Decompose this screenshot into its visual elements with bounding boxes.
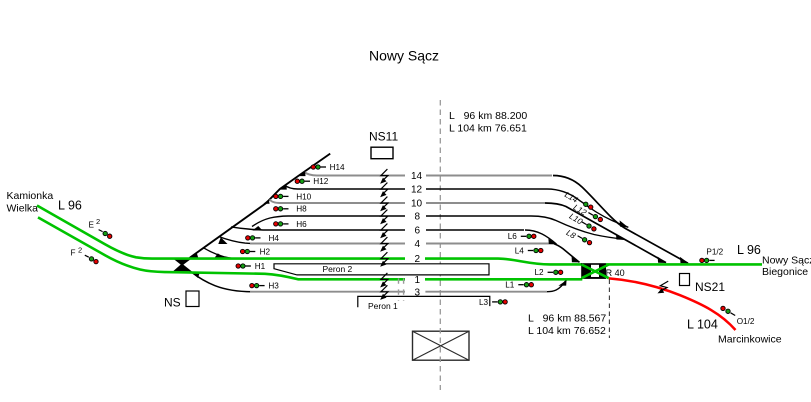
svg-text:14: 14 [411,171,423,182]
svg-text:NS21: NS21 [695,280,725,294]
svg-text:L2: L2 [534,268,544,277]
svg-text:6: 6 [415,226,421,237]
svg-text:Wielka: Wielka [7,203,39,215]
svg-text:H4: H4 [269,234,280,243]
svg-text:2: 2 [78,245,82,254]
svg-text:10: 10 [411,199,423,210]
svg-text:R 40: R 40 [606,268,625,278]
svg-text:NS11: NS11 [369,130,398,144]
svg-text:E: E [89,220,95,229]
svg-text:3: 3 [415,287,421,298]
svg-text:H12: H12 [313,177,328,186]
svg-text:O1/2: O1/2 [737,317,755,326]
svg-text:4: 4 [415,239,421,250]
svg-text:L 104 km 76.651: L 104 km 76.651 [449,123,527,135]
svg-text:Nowy Sącz: Nowy Sącz [369,48,439,64]
svg-text:H2: H2 [260,247,271,256]
svg-text:1: 1 [415,275,421,286]
svg-text:L 96 km 88.567: L 96 km 88.567 [528,313,606,325]
svg-text:L4: L4 [515,246,525,255]
svg-text:L1: L1 [505,281,515,290]
svg-text:F: F [71,248,76,257]
svg-text:L 104: L 104 [687,318,718,332]
svg-text:L6: L6 [508,232,518,241]
svg-text:Biegonice: Biegonice [762,266,808,278]
svg-text:2: 2 [96,217,100,226]
svg-text:L 96 km 88.200: L 96 km 88.200 [449,110,527,122]
svg-text:H10: H10 [296,192,311,201]
svg-text:8: 8 [415,212,421,223]
svg-text:Nowy Sącz: Nowy Sącz [762,255,811,267]
svg-text:H1: H1 [255,262,266,271]
svg-text:NS: NS [164,296,181,310]
svg-text:Peron 1: Peron 1 [368,301,398,311]
svg-text:H3: H3 [268,282,279,291]
svg-text:H6: H6 [296,220,307,229]
svg-text:12: 12 [411,185,423,196]
svg-text:Marcinkowice: Marcinkowice [718,334,782,346]
svg-text:Peron 2: Peron 2 [323,264,353,274]
svg-text:L 104 km 76.652: L 104 km 76.652 [528,325,606,337]
svg-text:L 96: L 96 [58,199,82,213]
svg-text:Kamionka: Kamionka [7,190,54,202]
svg-text:L3: L3 [479,298,489,307]
svg-text:2: 2 [415,254,421,265]
svg-text:L 96: L 96 [737,243,761,257]
svg-text:P1/2: P1/2 [706,247,723,256]
svg-text:H14: H14 [330,163,345,172]
svg-text:H8: H8 [296,205,307,214]
